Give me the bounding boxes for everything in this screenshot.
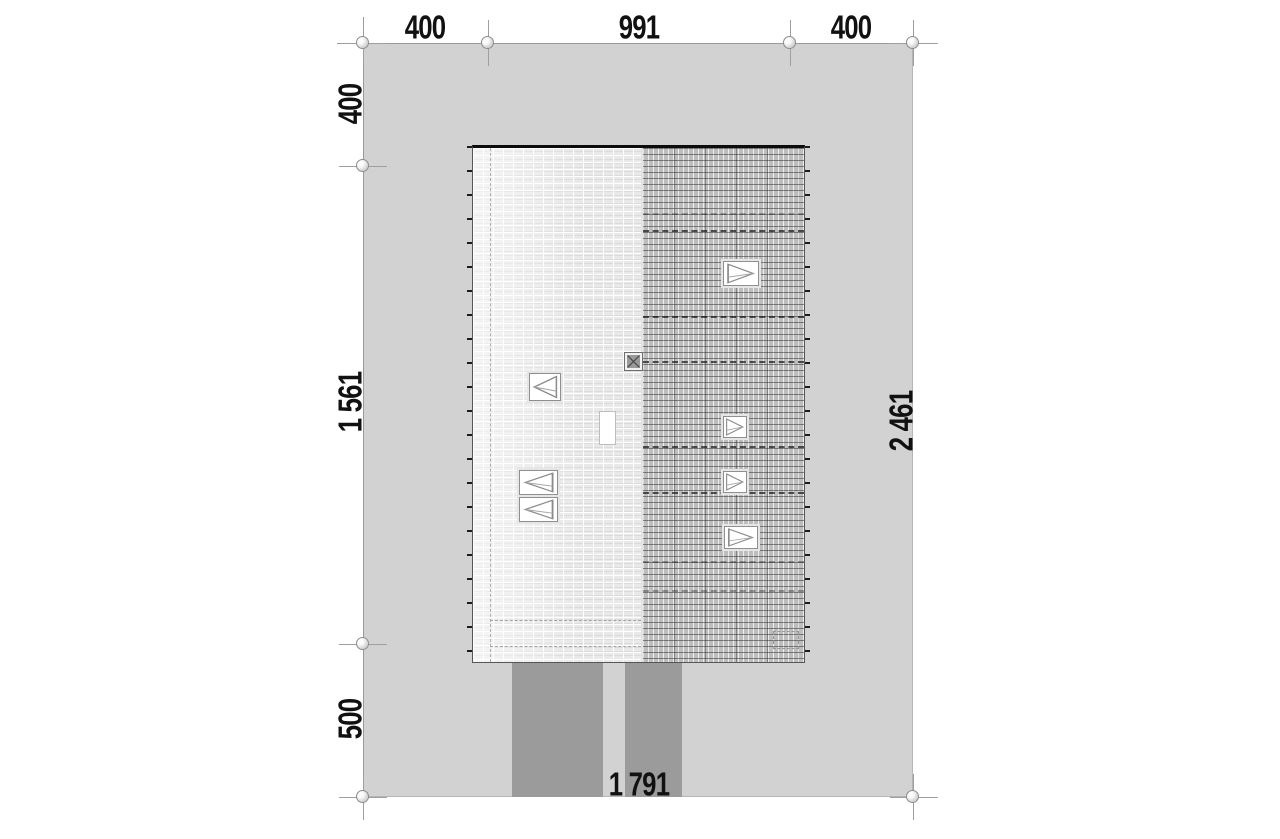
rafter-ticks-left — [467, 146, 472, 666]
opening-direction-right-icon — [724, 472, 746, 492]
roof-plan — [472, 145, 805, 663]
skylight-window — [723, 416, 747, 438]
opening-direction-left-icon — [520, 471, 557, 494]
dim-label-bottom-total: 1 791 — [609, 768, 670, 801]
opening-direction-left-icon — [530, 374, 560, 400]
dim-label-top-center: 991 — [619, 11, 660, 44]
opening-direction-right-icon — [724, 417, 746, 437]
site-plan-canvas: 400 991 400 400 1 561 500 2 461 1 791 — [0, 0, 1280, 839]
hidden-feature-dashed-rect — [773, 631, 799, 649]
batten-line — [643, 561, 804, 563]
dimension-marker — [783, 36, 796, 49]
opening-direction-right-icon — [724, 262, 758, 285]
dim-label-top-left: 400 — [405, 11, 446, 44]
dim-label-left-bottom: 500 — [334, 699, 367, 740]
batten-line — [643, 446, 804, 448]
vent-cross-icon — [627, 355, 640, 368]
batten-line — [643, 230, 804, 232]
dimension-marker — [906, 36, 919, 49]
hidden-wall-dashed-line — [490, 646, 641, 647]
dimension-marker — [481, 36, 494, 49]
batten-line — [643, 361, 804, 363]
chimney-vent — [625, 353, 642, 370]
dimension-marker — [356, 790, 369, 803]
dimension-marker — [356, 637, 369, 650]
batten-line — [643, 316, 804, 318]
hidden-wall-dashed-line — [490, 620, 641, 621]
skylight-window — [529, 373, 561, 401]
eave-dashed-line — [490, 148, 491, 662]
dimension-marker — [356, 36, 369, 49]
roof-right-plane — [641, 148, 804, 662]
rafter-ticks-right — [805, 146, 810, 666]
dim-label-top-right: 400 — [831, 11, 872, 44]
skylight-window — [519, 497, 558, 522]
skylight-window — [723, 471, 747, 493]
opening-direction-right-icon — [725, 527, 757, 548]
batten-line — [643, 213, 804, 215]
dim-label-left-middle: 1 561 — [334, 372, 367, 433]
dim-label-left-top: 400 — [334, 84, 367, 125]
roof-left-plane — [473, 148, 641, 662]
dim-label-right-total: 2 461 — [885, 391, 918, 452]
opening-direction-left-icon — [520, 498, 557, 521]
driveway-strip — [512, 663, 603, 797]
dimension-marker — [356, 159, 369, 172]
batten-line — [643, 590, 804, 592]
skylight-window — [519, 470, 558, 495]
skylight-window — [723, 261, 759, 286]
skylight-window — [724, 526, 758, 549]
roof-hatch-blank — [599, 411, 616, 445]
dimension-marker — [906, 790, 919, 803]
